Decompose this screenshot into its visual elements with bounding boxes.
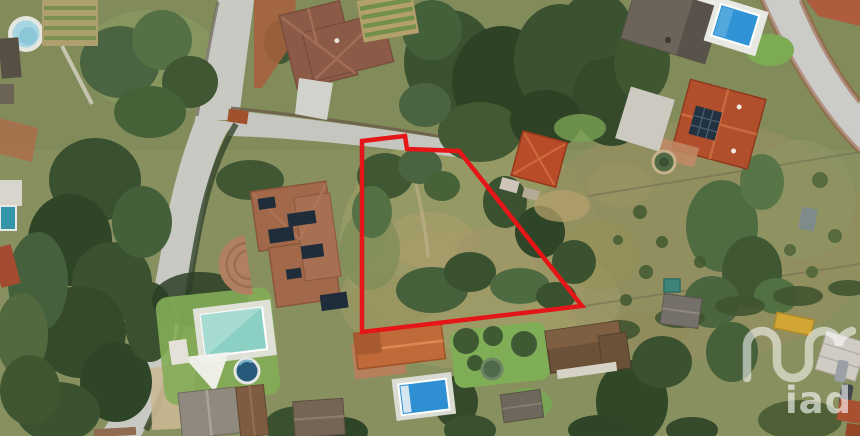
- round-above-ground-pool: [235, 359, 259, 383]
- teal-shed: [664, 279, 680, 292]
- round-pond: [482, 359, 502, 379]
- driveway-top-center: [295, 78, 333, 120]
- watermark-text: iad: [785, 379, 852, 422]
- aerial-photo-canvas: iad: [0, 0, 860, 436]
- pool-left-edge: [0, 206, 16, 230]
- house-topleft-roof: [0, 37, 22, 79]
- house-left-edge: [0, 180, 22, 206]
- satellite-image: iad: [0, 0, 860, 436]
- gate-structure: [227, 109, 249, 125]
